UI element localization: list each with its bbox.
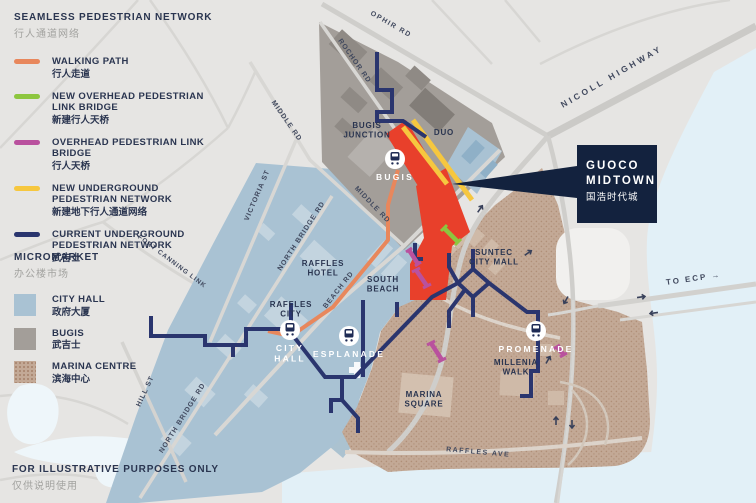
place-label-duo: DUO — [434, 128, 454, 137]
walking-path-line-swatch — [14, 59, 40, 64]
micromarket-title-zh: 办公楼市场 — [14, 265, 224, 280]
legend-label-zh: 新建地下行人通道网络 — [52, 207, 210, 219]
pedestrian-network-map: BUGISCITYHALLESPLANADEPROMENADE OPHIR RD… — [0, 0, 756, 503]
micromarket-label-zh: 武吉士 — [52, 340, 210, 352]
micromarket-items: CITY HALL政府大厦BUGIS武吉士MARINA CENTRE滨海中心 — [14, 294, 224, 386]
legend-title: SEAMLESS PEDESTRIAN NETWORK — [14, 12, 244, 23]
disclaimer-en: FOR ILLUSTRATIVE PURPOSES ONLY — [12, 464, 219, 475]
legend-title-zh: 行人通道网络 — [14, 25, 244, 40]
callout-zh: 国浩时代城 — [586, 191, 639, 203]
legend-item-walking-path: WALKING PATH行人走道 — [14, 56, 244, 81]
city-hall-swatch — [14, 294, 36, 316]
legend-label: NEW OVERHEAD PEDESTRIAN LINK BRIDGE — [52, 91, 210, 114]
place-label-raffles-hotel: RAFFLESHOTEL — [302, 259, 345, 278]
new-underground-network-line-swatch — [14, 186, 40, 191]
legend-items: WALKING PATH行人走道NEW OVERHEAD PEDESTRIAN … — [14, 56, 244, 265]
micromarket-label: CITY HALL — [52, 294, 210, 306]
legend-label: OVERHEAD PEDESTRIAN LINK BRIDGE — [52, 137, 210, 160]
current-underground-network-line-swatch — [14, 232, 40, 237]
overhead-link-bridge-line-swatch — [14, 140, 40, 145]
callout-line1: GUOCO — [586, 160, 639, 172]
micromarket-label: MARINA CENTRE — [52, 361, 210, 373]
micromarket-label: BUGIS — [52, 328, 210, 340]
legend-label: CURRENT UNDERGROUND PEDESTRIAN NETWORK — [52, 229, 210, 252]
legend-label-zh: 新建行人天桥 — [52, 115, 210, 127]
station-label-promenade: PROMENADE — [498, 344, 573, 354]
callout-line2: MIDTOWN — [586, 175, 656, 187]
place-label-marina-square: MARINASQUARE — [404, 390, 443, 409]
station-label-bugis: BUGIS — [376, 172, 414, 182]
legend-label-zh: 行人天桥 — [52, 161, 210, 173]
place-label-south-beach: SOUTHBEACH — [367, 275, 399, 294]
legend-item-overhead-link-bridge: OVERHEAD PEDESTRIAN LINK BRIDGE行人天桥 — [14, 137, 244, 173]
legend-item-new-underground-network: NEW UNDERGROUND PEDESTRIAN NETWORK新建地下行人… — [14, 183, 244, 219]
legend: SEAMLESS PEDESTRIAN NETWORK 行人通道网络 WALKI… — [14, 12, 244, 275]
legend-label: WALKING PATH — [52, 56, 210, 68]
legend-label: NEW UNDERGROUND PEDESTRIAN NETWORK — [52, 183, 210, 206]
micromarket-legend: MICROMARKET 办公楼市场 CITY HALL政府大厦BUGIS武吉士M… — [14, 252, 224, 395]
micromarket-item-bugis: BUGIS武吉士 — [14, 328, 224, 353]
micromarket-title: MICROMARKET — [14, 252, 224, 263]
micromarket-item-city-hall: CITY HALL政府大厦 — [14, 294, 224, 319]
disclaimer: FOR ILLUSTRATIVE PURPOSES ONLY 仅供说明使用 — [12, 464, 219, 492]
legend-item-new-overhead-link-bridge: NEW OVERHEAD PEDESTRIAN LINK BRIDGE新建行人天… — [14, 91, 244, 127]
micromarket-label-zh: 政府大厦 — [52, 307, 210, 319]
micromarket-label-zh: 滨海中心 — [52, 374, 210, 386]
micromarket-item-marina-centre: MARINA CENTRE滨海中心 — [14, 361, 224, 386]
disclaimer-zh: 仅供说明使用 — [12, 477, 219, 492]
bugis-swatch — [14, 328, 36, 350]
marina-centre-swatch — [14, 361, 36, 383]
station-label-esplanade: ESPLANADE — [313, 349, 385, 359]
new-overhead-link-bridge-line-swatch — [14, 94, 40, 99]
legend-label-zh: 行人走道 — [52, 69, 210, 81]
station-label-city-hall: CITYHALL — [274, 343, 305, 364]
place-label-suntec-city-mall: SUNTECCITY MALL — [469, 248, 519, 267]
